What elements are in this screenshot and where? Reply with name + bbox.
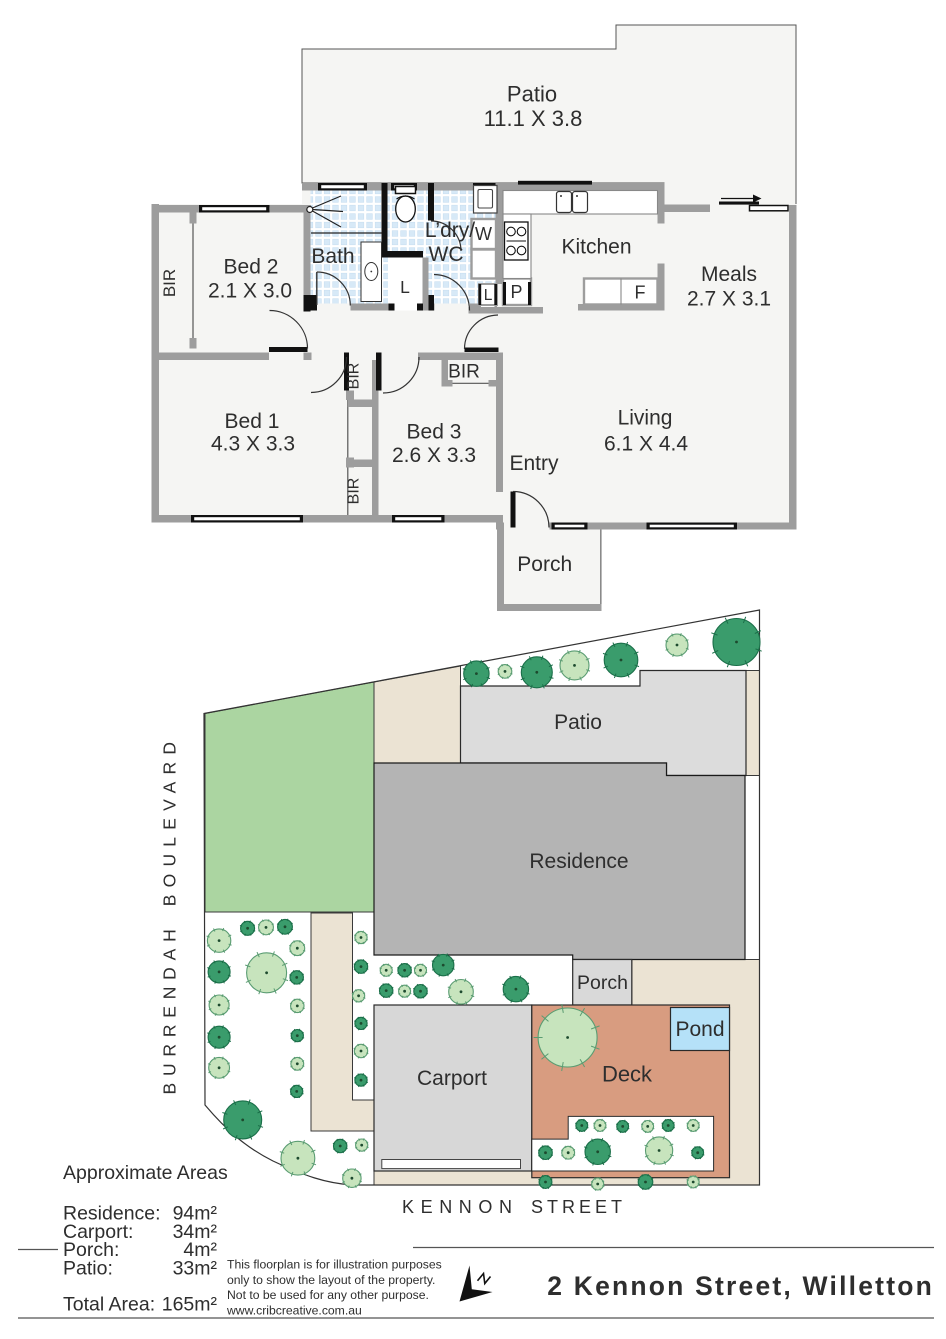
svg-text:WC: WC	[429, 243, 464, 266]
svg-text:Bed 2: Bed 2	[224, 256, 279, 279]
svg-text:Residence: Residence	[529, 850, 628, 873]
svg-text:STREET: STREET	[531, 1197, 626, 1217]
svg-text:L’dry/: L’dry/	[425, 219, 475, 242]
svg-text:Patio: Patio	[554, 711, 602, 734]
svg-text:L: L	[484, 287, 493, 304]
svg-text:Porch: Porch	[517, 553, 572, 576]
svg-text:Bath: Bath	[311, 245, 354, 268]
svg-text:BURRENDAH: BURRENDAH	[160, 922, 180, 1094]
svg-text:P: P	[510, 282, 522, 302]
svg-text:Entry: Entry	[509, 452, 559, 475]
svg-text:2 Kennon Street, Willetton: 2 Kennon Street, Willetton	[547, 1271, 934, 1301]
svg-text:Approximate Areas: Approximate Areas	[63, 1162, 228, 1184]
svg-text:165m²: 165m²	[162, 1294, 218, 1316]
svg-text:Porch: Porch	[577, 972, 628, 994]
svg-text:Not to be used for any other p: Not to be used for any other purpose.	[227, 1288, 429, 1302]
svg-text:2.6 X 3.3: 2.6 X 3.3	[392, 444, 476, 467]
svg-text:2.1 X 3.0: 2.1 X 3.0	[208, 280, 292, 303]
svg-text:6.1 X 4.4: 6.1 X 4.4	[604, 433, 688, 456]
svg-text:Living: Living	[618, 407, 673, 430]
svg-text:Bed 3: Bed 3	[407, 421, 462, 444]
svg-text:Patio:: Patio:	[63, 1257, 113, 1279]
svg-text:This floorplan is for illustra: This floorplan is for illustration purpo…	[227, 1258, 442, 1272]
svg-text:Patio: Patio	[507, 82, 557, 107]
svg-text:11.1 X 3.8: 11.1 X 3.8	[484, 106, 583, 131]
svg-text:Kitchen: Kitchen	[561, 236, 631, 259]
svg-text:L: L	[400, 277, 410, 297]
svg-text:BIR: BIR	[346, 478, 363, 505]
svg-text:Deck: Deck	[602, 1062, 653, 1087]
svg-text:BIR: BIR	[346, 363, 363, 390]
svg-text:Pond: Pond	[675, 1018, 724, 1041]
svg-text:BOULEVARD: BOULEVARD	[160, 735, 180, 906]
svg-text:www.cribcreative.com.au: www.cribcreative.com.au	[226, 1303, 362, 1317]
svg-text:only to show the layout of the: only to show the layout of the property.	[227, 1273, 435, 1287]
svg-text:Carport: Carport	[417, 1067, 487, 1090]
svg-text:Bed 1: Bed 1	[225, 410, 280, 433]
svg-text:BIR: BIR	[448, 362, 480, 383]
svg-text:33m²: 33m²	[173, 1257, 218, 1279]
svg-text:4.3 X 3.3: 4.3 X 3.3	[211, 433, 295, 456]
svg-text:W: W	[475, 224, 492, 244]
svg-text:BIR: BIR	[160, 269, 179, 297]
svg-text:KENNON: KENNON	[402, 1197, 519, 1217]
svg-text:2.7 X 3.1: 2.7 X 3.1	[687, 288, 771, 311]
svg-text:Meals: Meals	[701, 263, 757, 286]
svg-text:Total Area:: Total Area:	[63, 1294, 155, 1316]
svg-text:F: F	[635, 283, 646, 303]
